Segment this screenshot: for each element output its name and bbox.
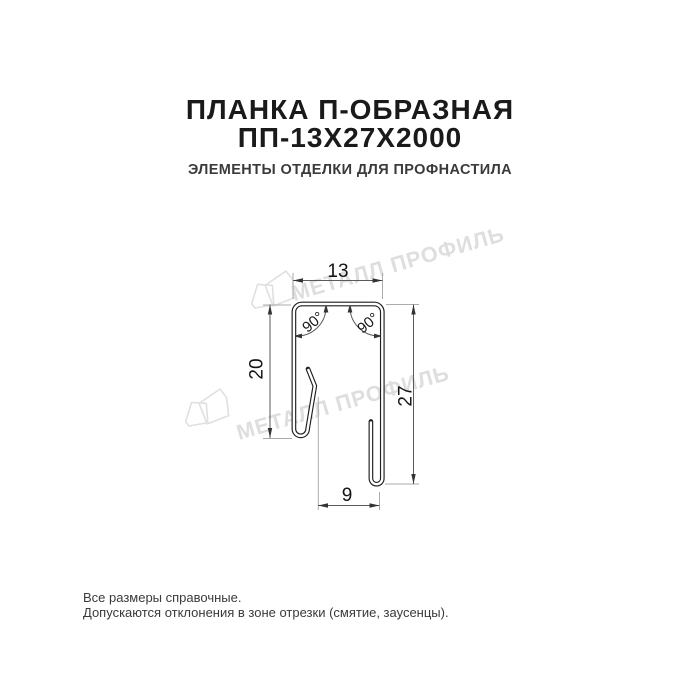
angle-right-label: 90° (354, 310, 382, 338)
footer-note-2: Допускаются отклонения в зоне отрезки (с… (83, 605, 449, 620)
dim-left-height-label: 20 (247, 358, 268, 379)
product-drawing-page: ПЛАНКА П-ОБРАЗНАЯ ПП-13Х27Х2000 ЭЛЕМЕНТЫ… (0, 0, 700, 700)
angle-callout-left: 90° (294, 304, 329, 338)
watermark-top-right: МЕТАЛЛ ПРОФИЛЬ (246, 222, 508, 312)
angle-left-label: 90° (299, 309, 327, 337)
arrow-left (318, 503, 328, 507)
dim-right-height-label: 27 (396, 385, 417, 406)
dim-top-width-label: 13 (327, 261, 348, 282)
angle-callout-right: 90° (348, 304, 383, 338)
arrow-down (411, 474, 415, 484)
arrow-up (411, 305, 415, 315)
watermark-text: МЕТАЛЛ ПРОФИЛЬ (289, 222, 508, 306)
arrow-right (370, 503, 380, 507)
footer-note-1: Все размеры справочные. (83, 590, 449, 605)
footer-notes: Все размеры справочные. Допускаются откл… (83, 590, 449, 620)
metall-profil-logo-icon (180, 388, 232, 430)
dim-bottom-gap-label: 9 (342, 485, 353, 506)
